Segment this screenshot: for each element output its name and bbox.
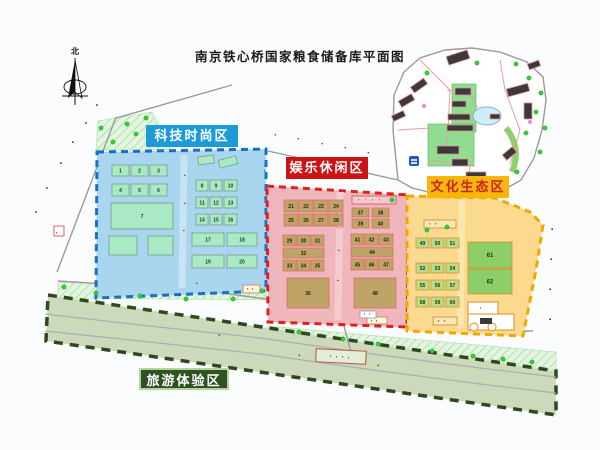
road-name-character: ▪ (549, 287, 551, 293)
building-number: 61 (487, 253, 494, 259)
building-number: 45 (355, 262, 361, 268)
building-number: 30 (301, 238, 307, 244)
flower-shrub (528, 120, 532, 124)
building-number: 1 (119, 168, 122, 174)
building-number: 15 (213, 217, 219, 223)
site-plan-image: 1234567891011121314151617181920 21222324… (0, 0, 600, 450)
building-number: 59 (435, 300, 441, 306)
building-number: 21 (288, 204, 294, 210)
tree (144, 116, 148, 120)
tree (125, 122, 129, 126)
road-name-character: ▪ (320, 141, 323, 147)
compass-needle-light (75, 60, 82, 98)
tree (94, 291, 98, 295)
building-number: 2 (138, 168, 141, 174)
tree (99, 126, 103, 130)
building-number: 6 (157, 188, 160, 194)
building-number: 14 (199, 217, 205, 223)
northeast-complex-building (452, 159, 468, 166)
page-title: 南京铁心桥国家粮食储备库平面图 (0, 46, 600, 65)
compound-silo (488, 323, 496, 331)
zone-label-tech: 科技时尚区 (146, 125, 238, 147)
building-number: 18 (239, 237, 245, 243)
tree (425, 228, 429, 232)
building-number: 38 (378, 210, 384, 216)
building-number: 34 (301, 263, 307, 269)
tech-zone-building (148, 236, 173, 255)
tree (260, 289, 264, 293)
inner-road-character: ▪ (337, 278, 339, 284)
road-name-character: ▪ (94, 103, 99, 109)
road-name-character: ▪ (366, 150, 369, 156)
building-number: 48 (372, 291, 378, 297)
tree (501, 357, 505, 361)
small-label-character: ▪ (56, 230, 58, 235)
inner-road-character: ▪ (196, 281, 198, 287)
building-number: 56 (435, 283, 441, 289)
building-number: 25 (288, 218, 294, 224)
tree (524, 131, 528, 135)
tree (530, 360, 534, 364)
building-number: 16 (228, 217, 234, 223)
inner-road-character: ▪ (183, 228, 185, 234)
building-number: 36 (305, 291, 311, 297)
road-name-character: ▪ (70, 140, 75, 146)
tree (134, 132, 138, 136)
northeast-complex-building (452, 101, 466, 107)
tree (297, 330, 301, 334)
northeast-complex-building (437, 146, 459, 154)
zone-label-culture: 文化生态区 (427, 176, 509, 198)
building-number: 39 (358, 221, 364, 227)
building-number: 37 (358, 210, 364, 216)
building-number: 7 (141, 214, 144, 220)
tree (534, 110, 538, 114)
visitor-center-box (316, 349, 367, 365)
inner-road-character: ▪ (184, 201, 186, 207)
culture-zone-fields: 6162 (468, 242, 512, 294)
tree (111, 140, 115, 144)
inner-lane (460, 200, 462, 328)
building-number: 10 (228, 183, 234, 189)
building-number: 49 (420, 241, 426, 247)
road-name-character: ▪ (551, 227, 553, 233)
building-number: 47 (383, 262, 389, 268)
compound-silo (470, 323, 478, 331)
building-number: 12 (213, 200, 219, 206)
tree (62, 285, 66, 289)
parking-sign-stripe (411, 159, 417, 161)
building-number: 57 (450, 283, 456, 289)
road-name-character: ▪ (33, 210, 38, 216)
road-name-character: ▪ (296, 136, 299, 142)
northeast-complex-building (524, 103, 532, 119)
building-number: 24 (333, 204, 339, 210)
road-name-character: ▪ (549, 317, 551, 323)
building-number: 27 (318, 218, 324, 224)
road-name-character: ▪ (343, 145, 346, 151)
building-number: 46 (369, 262, 375, 268)
building-number: 5 (138, 188, 141, 194)
building-number: 52 (420, 266, 426, 272)
building-number: 29 (287, 238, 293, 244)
zone-label-fun: 娱乐休闲区 (286, 157, 368, 179)
building-number: 53 (435, 266, 441, 272)
compass-needle-dark (68, 60, 75, 98)
building-number: 19 (205, 259, 211, 265)
building-number: 8 (201, 183, 204, 189)
road-name-character: ▪ (83, 121, 88, 127)
road-name-character: ▪ (58, 161, 63, 167)
northeast-complex-building (447, 125, 473, 131)
tree (471, 354, 475, 358)
tree (138, 294, 142, 298)
tree (539, 91, 543, 95)
compound-building (468, 302, 498, 314)
northeast-complex-building (455, 88, 471, 95)
inner-road-character: ▪ (338, 248, 340, 254)
building-number: 58 (420, 300, 426, 306)
inner-road-character: ▪ (184, 173, 186, 179)
building-number: 33 (287, 263, 293, 269)
tree (231, 297, 235, 301)
tree (527, 76, 531, 80)
building-number: 62 (487, 279, 494, 285)
tree (425, 71, 429, 75)
building-number: 28 (333, 218, 339, 224)
building-number: 41 (355, 237, 361, 243)
culture-zone-buildings: 495051525354555657585960 (416, 238, 459, 307)
building-number: 4 (119, 188, 122, 194)
building-number: 42 (369, 237, 375, 243)
building-number: 43 (383, 237, 389, 243)
parking-sign-stripe (411, 162, 417, 164)
building-number: 17 (205, 237, 211, 243)
northeast-complex-building (490, 114, 500, 119)
building-number: 50 (435, 241, 441, 247)
building-number: 3 (157, 168, 160, 174)
tree (430, 349, 434, 353)
site-plan-map: 1234567891011121314151617181920 21222324… (0, 0, 600, 450)
building-number: 23 (318, 204, 324, 210)
tech-zone-building (198, 155, 215, 165)
compass-north-label: 北 (62, 46, 88, 57)
building-number: 13 (228, 200, 234, 206)
building-number: 32 (301, 251, 307, 257)
building-number: 35 (315, 263, 321, 269)
tree (538, 150, 542, 154)
tech-zone-building (109, 236, 137, 255)
tree (376, 342, 380, 346)
building-number: 26 (303, 218, 309, 224)
zone-label-tour: 旅游体验区 (139, 368, 229, 390)
building-number: 9 (215, 183, 218, 189)
building-number: 44 (369, 250, 375, 256)
building-number: 60 (450, 300, 456, 306)
building-number: 11 (199, 200, 205, 206)
road-name-character: ▪ (273, 132, 276, 138)
building-number: 40 (378, 221, 384, 227)
building-number: 55 (420, 283, 426, 289)
northeast-complex-building (448, 114, 470, 120)
tree (515, 170, 519, 174)
tree (184, 297, 188, 301)
flower-shrub (422, 104, 426, 108)
tree (445, 225, 449, 229)
road-name-character: ▪ (550, 257, 552, 263)
building-number: 22 (303, 204, 309, 210)
tree (341, 337, 345, 341)
tree (543, 126, 547, 130)
compass-icon (62, 58, 88, 105)
building-number: 54 (450, 266, 456, 272)
building-number: 51 (450, 241, 456, 247)
road-name-character: ▪ (44, 186, 49, 192)
building-number: 20 (239, 259, 245, 265)
tree (390, 198, 394, 202)
building-number: 31 (315, 238, 321, 244)
road (116, 85, 232, 118)
small-label-box (360, 311, 376, 318)
